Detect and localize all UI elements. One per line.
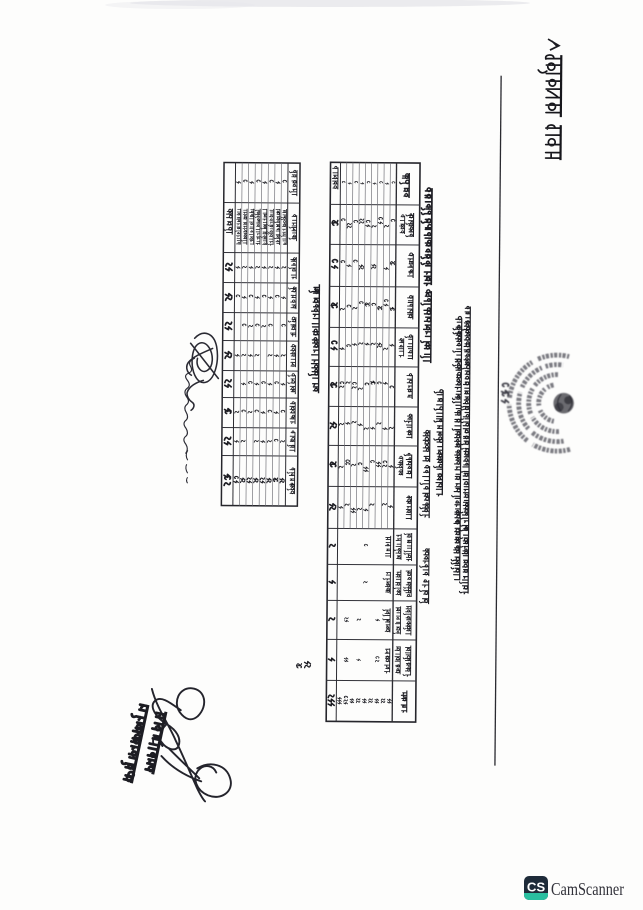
svg-text:CamScanner: CamScanner <box>551 879 624 899</box>
svg-text:CS: CS <box>527 880 546 895</box>
